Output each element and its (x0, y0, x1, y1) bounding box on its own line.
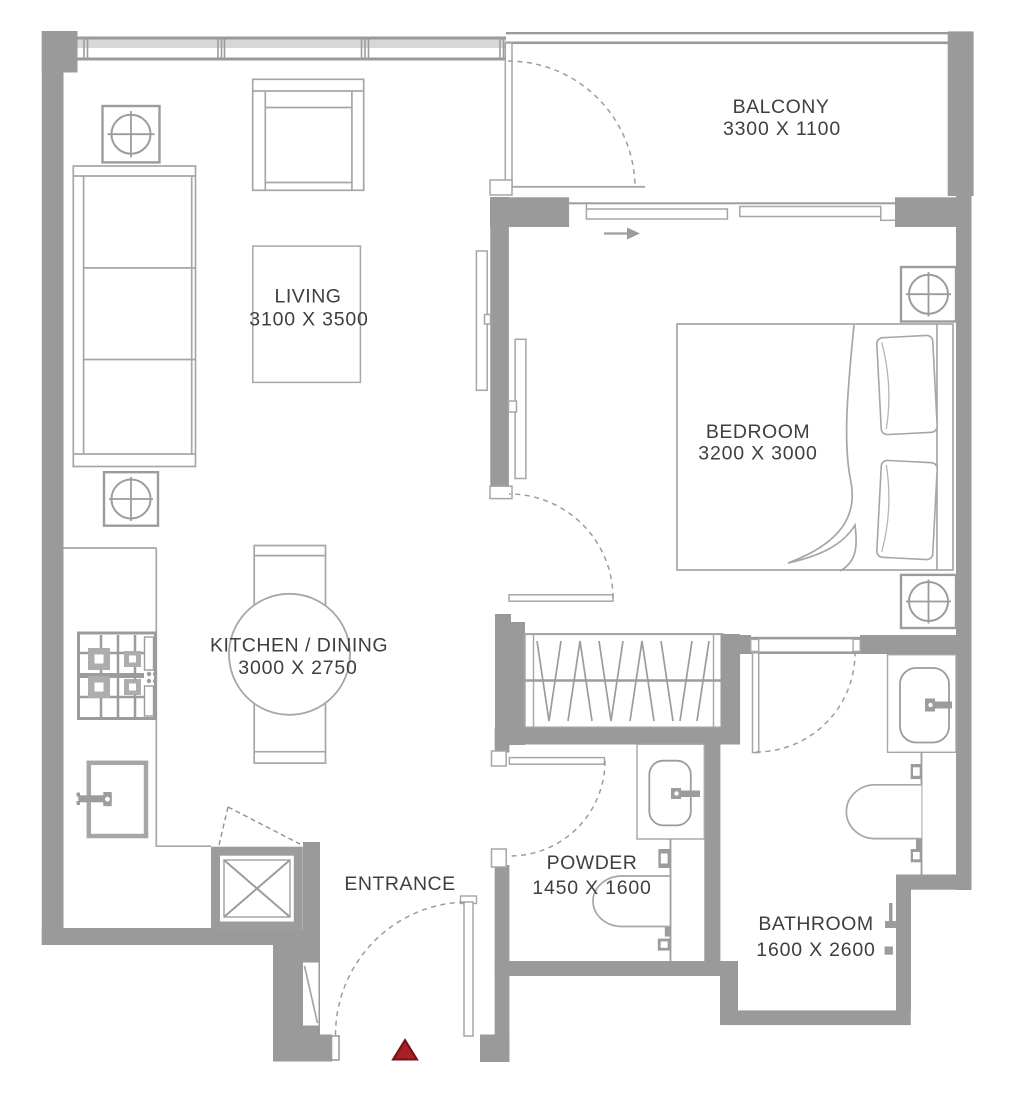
svg-text:1600 X 2600: 1600 X 2600 (756, 939, 875, 961)
svg-text:BEDROOM: BEDROOM (706, 421, 810, 443)
svg-text:3000 X 2750: 3000 X 2750 (238, 657, 357, 679)
svg-text:3300 X 1100: 3300 X 1100 (723, 118, 841, 140)
svg-text:BATHROOM: BATHROOM (758, 913, 873, 935)
svg-text:BALCONY: BALCONY (733, 96, 830, 118)
svg-text:LIVING: LIVING (275, 286, 342, 308)
svg-text:1450 X 1600: 1450 X 1600 (532, 877, 651, 899)
svg-text:POWDER: POWDER (547, 852, 638, 874)
svg-text:KITCHEN / DINING: KITCHEN / DINING (210, 635, 388, 657)
svg-text:3200 X 3000: 3200 X 3000 (698, 443, 817, 465)
svg-text:3100 X 3500: 3100 X 3500 (249, 309, 368, 331)
svg-text:ENTRANCE: ENTRANCE (344, 873, 455, 895)
